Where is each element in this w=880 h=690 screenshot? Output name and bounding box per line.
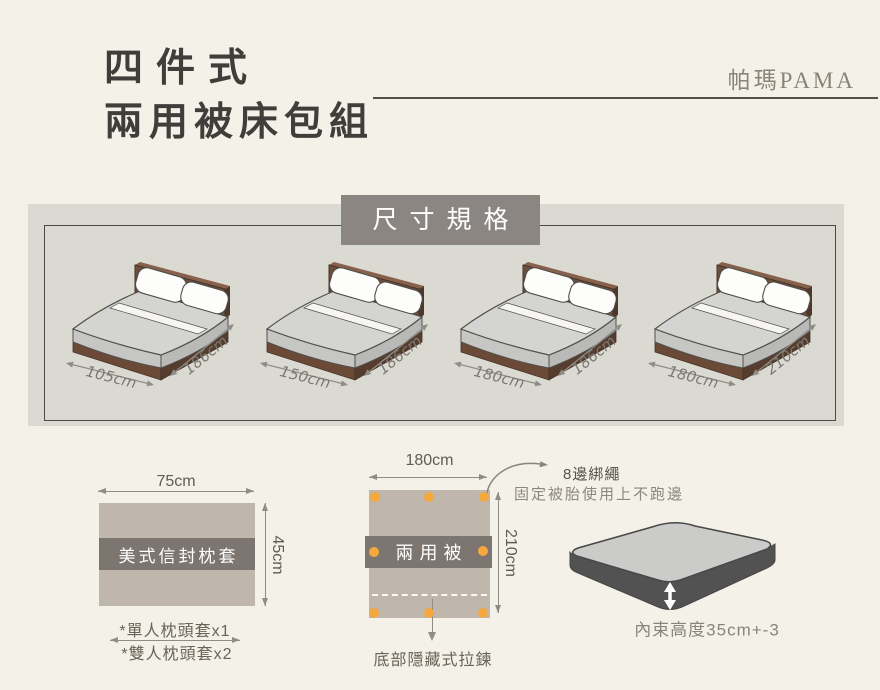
bed-illustration-king: 180cm 210cm — [640, 252, 840, 402]
quilt-width-arrow — [369, 477, 487, 478]
bed-illustration-queen: 180cm 186cm — [446, 252, 646, 402]
tie-rope-dot — [424, 492, 434, 502]
tie-rope-dot — [370, 492, 380, 502]
brand-underline — [373, 97, 878, 99]
mattress-height-note: 內束高度35cm+-3 — [634, 616, 780, 641]
page-title-line2: 兩用被床包組 — [104, 91, 374, 147]
tie-rope-dot — [478, 608, 488, 618]
pillowcase-note-single: *單人枕頭套x1 — [119, 617, 230, 641]
pillowcase-band: 美式信封枕套 — [99, 538, 255, 570]
bed-illustration-double: 150cm 186cm — [252, 252, 452, 402]
pillowcase-width-arrow — [98, 491, 254, 492]
tie-rope-dot — [369, 608, 379, 618]
quilt-rect: 兩用被 — [369, 490, 490, 618]
quilt-band: 兩用被 — [365, 536, 492, 568]
quilt-zipper-note: 底部隱藏式拉鍊 — [373, 646, 492, 670]
quilt-tie-note-line1: 8邊綁繩 — [563, 463, 620, 484]
bed-illustration-single: 105cm 186cm — [58, 252, 258, 402]
product-spec-page: 四件式 兩用被床包組 帕瑪PAMA 尺寸規格 105cm 186cm 150cm… — [0, 0, 880, 690]
pillowcase-height-label: 45cm — [268, 535, 286, 574]
tie-rope-dot — [478, 546, 488, 556]
brand-name: 帕瑪PAMA — [728, 61, 856, 95]
quilt-height-arrow — [498, 492, 499, 613]
pillowcase-rect: 美式信封枕套 — [99, 503, 255, 606]
tie-rope-dot — [479, 492, 489, 502]
pillowcase-note-double: *雙人枕頭套x2 — [121, 640, 232, 664]
quilt-height-label: 210cm — [501, 529, 519, 577]
quilt-dashed-line — [372, 594, 487, 596]
pillowcase-width-label: 75cm — [98, 473, 254, 491]
quilt-width-label: 180cm — [369, 452, 490, 470]
tie-rope-dot — [424, 608, 434, 618]
page-title-line1: 四件式 — [104, 37, 260, 93]
pillowcase-height-arrow — [265, 503, 266, 606]
spec-title: 尺寸規格 — [341, 195, 540, 245]
tie-rope-dot — [369, 547, 379, 557]
quilt-tie-note-line2: 固定被胎使用上不跑邊 — [514, 483, 684, 504]
